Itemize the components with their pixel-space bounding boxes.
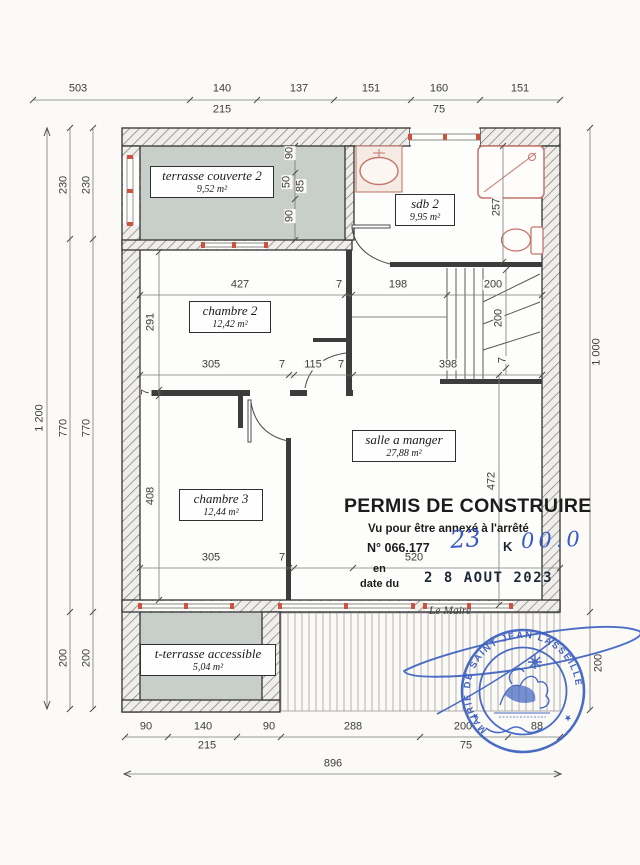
room-area: 9,52 m² — [154, 184, 270, 196]
dim-bottom-215: 215 — [197, 741, 217, 752]
room-name: terrasse couverte 2 — [154, 169, 270, 184]
dim-bottom-140: 140 — [193, 722, 213, 733]
striped-deck — [280, 613, 560, 711]
wall-chambre2-bottom-c — [347, 390, 353, 396]
room-label-chambre2: chambre 2 12,42 m² — [189, 301, 271, 333]
wall-closet-stub — [313, 338, 348, 342]
wall-stub — [238, 396, 243, 428]
room-area: 9,95 m² — [399, 212, 451, 224]
permit-title: PERMIS DE CONSTRUIRE — [344, 497, 592, 517]
dim-bottom-896: 896 — [323, 759, 343, 770]
permit-number: N° 066.177 — [367, 542, 430, 555]
dim-left-230b: 230 — [82, 175, 93, 195]
dim-top-151a: 151 — [361, 84, 381, 95]
dim-int-305b: 305 — [201, 553, 221, 564]
room-label-sdb2: sdb 2 9,95 m² — [395, 194, 455, 226]
wall-chambre2-hall — [346, 250, 352, 396]
exterior-wall-top-right — [480, 128, 560, 146]
dim-top-137: 137 — [289, 84, 309, 95]
dim-int-427: 427 — [230, 280, 250, 291]
dim-int-85: 85 — [296, 179, 307, 193]
dim-bottom-288: 288 — [343, 722, 363, 733]
dim-bottom-200: 200 — [453, 722, 473, 733]
dim-int-198: 198 — [388, 280, 408, 291]
room-label-terrasse-couverte: terrasse couverte 2 9,52 m² — [150, 166, 274, 198]
room-label-salle-a-manger: salle a manger 27,88 m² — [352, 430, 456, 462]
stairs-bottom-edge — [440, 379, 542, 384]
room-area: 12,42 m² — [193, 319, 267, 331]
sdb2-door-leaf — [352, 225, 390, 228]
shower-fixture — [478, 146, 544, 198]
dim-top-140: 140 — [212, 84, 232, 95]
dim-int-7d: 7 — [498, 356, 509, 364]
dim-bottom-90a: 90 — [139, 722, 153, 733]
dim-int-257: 257 — [492, 197, 503, 217]
date-stamp: 2 8 AOUT 2023 — [424, 571, 553, 585]
dim-left-1200: 1 200 — [35, 403, 46, 433]
dim-left-200a: 200 — [59, 648, 70, 668]
dim-int-200w: 200 — [483, 280, 503, 291]
room-area: 5,04 m² — [144, 662, 272, 674]
wall-chambre3-salle — [286, 438, 291, 600]
dim-int-90a: 90 — [285, 146, 296, 160]
room-name: chambre 3 — [183, 492, 259, 507]
dim-int-200h: 200 — [494, 308, 505, 328]
dim-int-7c: 7 — [337, 360, 345, 371]
window-salle-bottom-1 — [278, 601, 415, 611]
window-chambre3-bottom — [138, 601, 234, 611]
room-name: chambre 2 — [193, 304, 267, 319]
room-name: salle a manger — [356, 433, 452, 448]
room-area: 27,88 m² — [356, 448, 452, 460]
dim-int-50: 50 — [282, 175, 293, 189]
dim-left-200b: 200 — [82, 648, 93, 668]
date-du-label: date du — [360, 579, 399, 590]
dim-int-90b: 90 — [285, 209, 296, 223]
room-label-chambre3: chambre 3 12,44 m² — [179, 489, 263, 521]
t-terrasse-bottom-wall — [122, 700, 280, 712]
room-name: t-terrasse accessible — [144, 647, 272, 662]
wall-sdb2-bottom — [390, 262, 542, 267]
dim-left-770a: 770 — [59, 418, 70, 438]
handwritten-ref-part3: 00.0 — [521, 529, 584, 552]
dim-bottom-90b: 90 — [262, 722, 276, 733]
sink-fixture — [356, 146, 402, 192]
dim-top-160: 160 — [429, 84, 449, 95]
wall-chambre2-bottom-b — [290, 390, 307, 396]
dim-right-1000: 1 000 — [592, 337, 603, 367]
dim-int-7b: 7 — [278, 360, 286, 371]
signatory-label: Le Maire — [429, 606, 471, 618]
room-area: 12,44 m² — [183, 507, 259, 519]
exterior-wall-top-left — [122, 128, 410, 146]
dim-int-7a: 7 — [335, 280, 343, 291]
floor-plan-drawing — [0, 0, 640, 865]
chambre3-door-leaf — [248, 400, 251, 442]
dim-int-7e: 7 — [141, 388, 152, 396]
dim-top-75: 75 — [432, 105, 446, 116]
window-terrace-bottom — [201, 241, 268, 249]
exterior-wall-left — [122, 146, 140, 712]
dim-int-472: 472 — [487, 471, 498, 491]
dim-int-408: 408 — [146, 486, 157, 506]
floor-plan-page: 503 140 137 151 160 151 215 75 1 200 230… — [0, 0, 640, 865]
dim-int-7f: 7 — [278, 553, 286, 564]
dim-top-503: 503 — [68, 84, 88, 95]
dim-int-305a: 305 — [201, 360, 221, 371]
room-name: sdb 2 — [399, 197, 451, 212]
dim-top-151b: 151 — [510, 84, 530, 95]
window-terrace-left — [123, 155, 139, 226]
dim-right-200: 200 — [594, 653, 605, 673]
en-label: en — [373, 564, 386, 575]
handwritten-ref-part2: K — [503, 540, 512, 553]
dim-int-398: 398 — [438, 360, 458, 371]
room-label-t-terrasse: t-terrasse accessible 5,04 m² — [140, 644, 276, 676]
dim-top-215: 215 — [212, 105, 232, 116]
dim-int-115: 115 — [303, 360, 323, 371]
dim-bottom-88: 88 — [530, 722, 544, 733]
dim-int-291: 291 — [146, 312, 157, 332]
dim-left-230a: 230 — [59, 175, 70, 195]
window-sdb2-top — [408, 129, 480, 145]
dim-bottom-75: 75 — [459, 741, 473, 752]
handwritten-ref-part1: 23 — [449, 526, 481, 552]
dim-left-770b: 770 — [82, 418, 93, 438]
